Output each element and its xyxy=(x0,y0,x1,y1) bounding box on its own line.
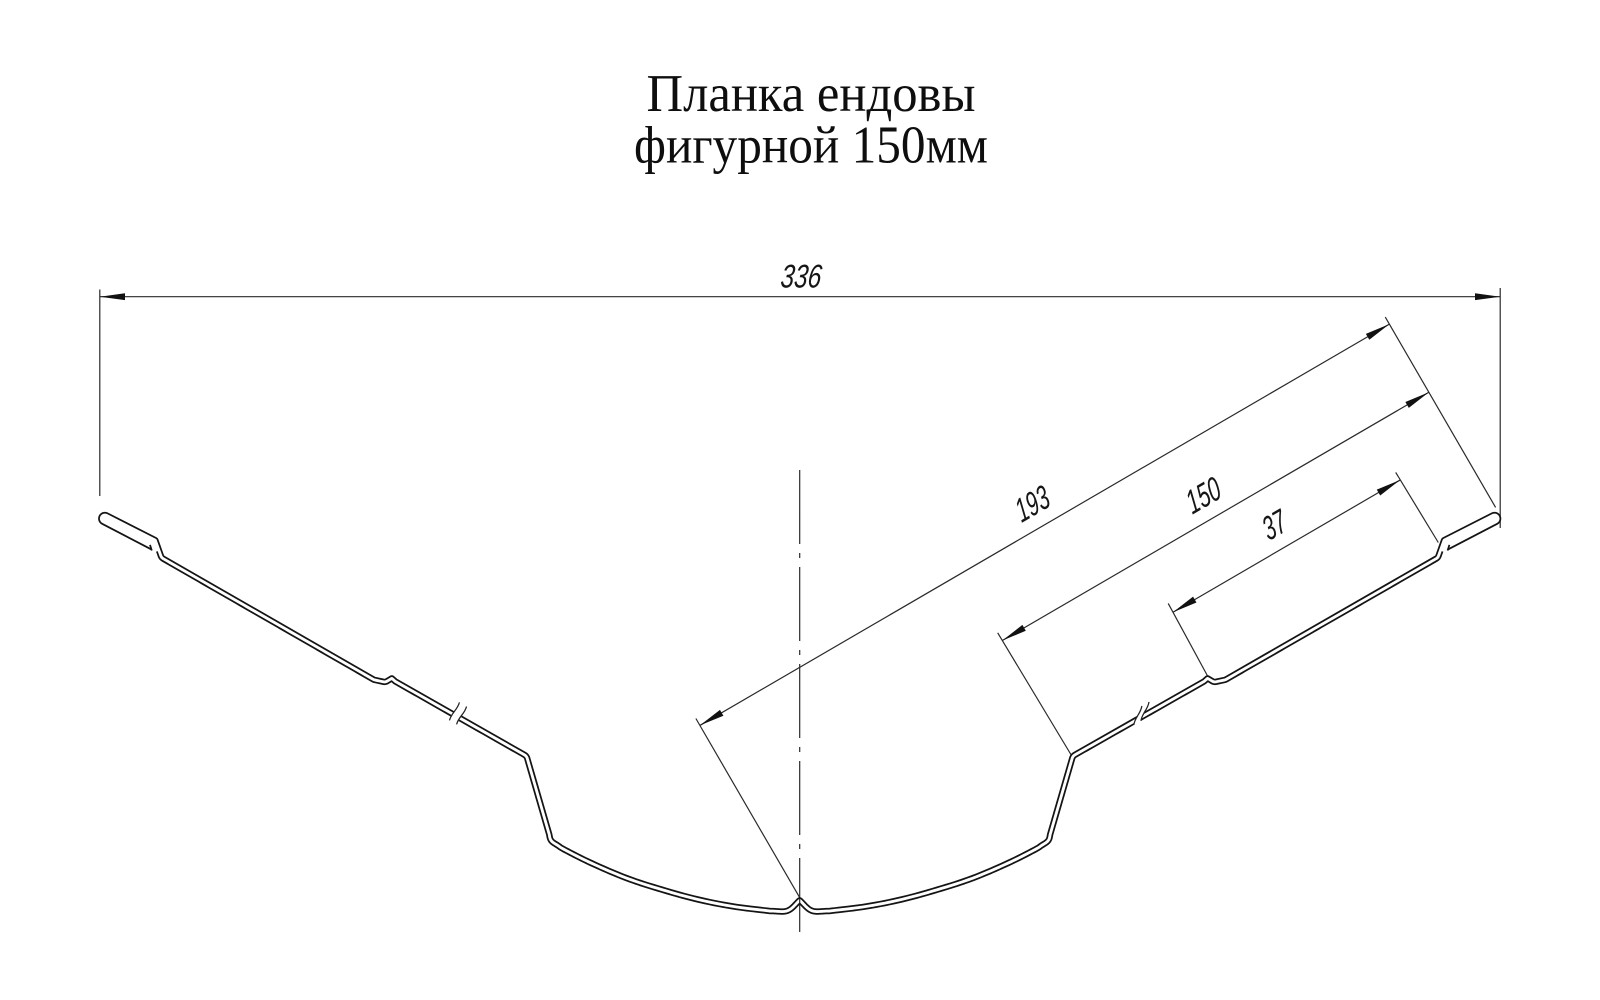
svg-text:336: 336 xyxy=(779,259,824,296)
svg-text:Планка ендовы: Планка ендовы xyxy=(647,65,976,123)
svg-text:фигурной 150мм: фигурной 150мм xyxy=(634,116,988,174)
